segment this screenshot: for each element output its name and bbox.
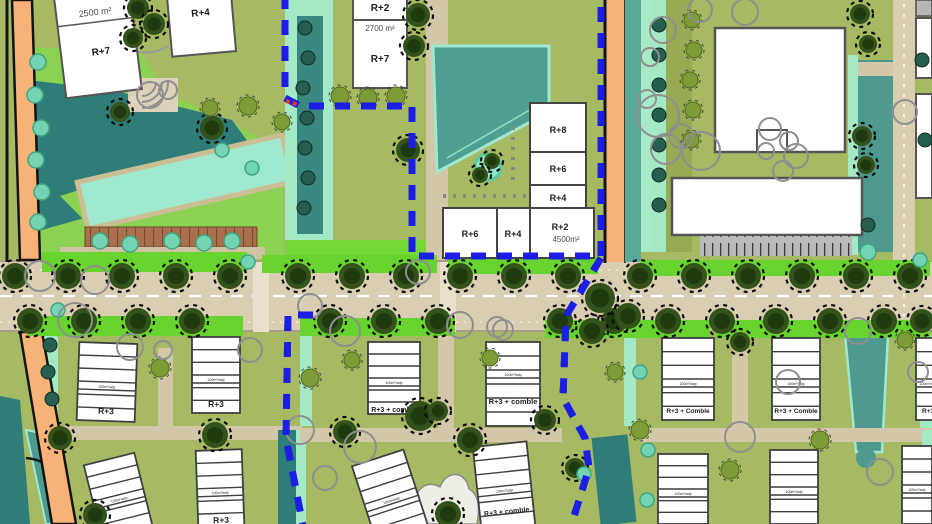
tree-core — [205, 121, 220, 136]
hedge-tree-icon — [43, 338, 57, 352]
street-tree-icon — [14, 305, 46, 337]
tree-core — [432, 405, 444, 417]
street-tree-icon — [444, 260, 476, 292]
teal-tree-icon — [164, 233, 180, 249]
building-label: R+3 + Comble — [774, 408, 818, 415]
street-tree-icon — [760, 305, 792, 337]
tree-core — [344, 268, 360, 284]
street-tree-icon — [498, 260, 530, 292]
tree-canopy — [913, 253, 927, 267]
tree-canopy — [202, 100, 218, 116]
tree-core — [430, 313, 446, 329]
building-row: R+6 R+4 R+2 4500m² — [443, 208, 594, 258]
hedge-tree-icon — [652, 108, 666, 122]
unit-size-label: 100m²/adp — [785, 490, 802, 494]
teal-tree-icon — [640, 493, 654, 507]
building-label: R+3 + Comble — [666, 408, 710, 415]
tree-canopy — [298, 21, 312, 35]
teal-tree-icon — [224, 233, 240, 249]
teal-tree-icon — [122, 236, 138, 252]
street-tree-icon — [199, 419, 231, 451]
tree-canopy — [27, 87, 43, 103]
tree-core — [462, 432, 478, 448]
hedge-tree-icon — [861, 218, 875, 232]
hedge-tree-icon — [652, 78, 666, 92]
tree-canopy — [861, 218, 875, 232]
street-tree-icon — [678, 260, 710, 292]
hedge-tree-icon — [296, 81, 310, 95]
street-tree-icon — [576, 315, 608, 347]
teal-tree-icon — [28, 152, 44, 168]
tree-canopy — [297, 201, 311, 215]
tree-core — [560, 268, 576, 284]
tree-core — [338, 425, 353, 440]
tree-core — [734, 336, 746, 348]
rowhouse-building: 100m²/adpR+3 — [196, 449, 245, 524]
buildings-right-edge — [916, 0, 932, 198]
rowhouse-building: 100m²/adp — [770, 450, 818, 524]
building-stack: R+8 R+6 R+4 — [530, 103, 586, 209]
tree-canopy — [686, 42, 702, 58]
access-path — [858, 62, 894, 76]
tree-core — [222, 268, 238, 284]
building-footprint — [916, 18, 932, 78]
tree-canopy — [301, 369, 319, 387]
teal-tree-icon — [92, 233, 108, 249]
tree-canopy — [721, 461, 739, 479]
street-tree-icon — [652, 305, 684, 337]
building-tm-r2: R+2 — [353, 0, 407, 20]
tree-core — [131, 1, 145, 15]
tree-core — [506, 268, 522, 284]
rowhouse-building: 100m²/adp — [902, 446, 932, 524]
tree-core — [407, 39, 421, 53]
tree-canopy — [652, 108, 666, 122]
building-label: R+7 — [371, 54, 390, 65]
hedge-tree-icon — [41, 365, 55, 379]
building-label: R+4 — [550, 193, 567, 203]
tree-canopy — [34, 184, 50, 200]
rowhouse-building: 100m²/adpR+3 + Comble — [662, 338, 714, 420]
tree-canopy — [652, 198, 666, 212]
building-label: R+3 — [98, 406, 114, 417]
mint-strip — [641, 0, 651, 252]
water-blob — [856, 448, 876, 468]
street-tree-icon — [160, 260, 192, 292]
teal-tree-icon — [33, 120, 49, 136]
building-label: R+4 — [191, 7, 211, 20]
rowhouse-building: 100m²/adpR+3 + Comble — [772, 338, 820, 420]
tree-core — [88, 508, 103, 523]
unit-size-label: 100m²/adp — [908, 488, 925, 492]
tree-canopy — [915, 53, 929, 67]
street-tree-icon — [52, 260, 84, 292]
tree-canopy — [631, 421, 649, 439]
street-tree-icon — [282, 260, 314, 292]
tree-core — [22, 313, 38, 329]
building-footprint — [530, 208, 594, 258]
street-tree-icon — [122, 305, 154, 337]
teal-tree-icon — [245, 161, 259, 175]
tree-core — [475, 170, 485, 180]
tree-core — [60, 268, 76, 284]
building-tm-r7: 2700 m² R+7 — [353, 20, 407, 88]
tree-core — [53, 431, 68, 446]
street-tree-icon — [0, 260, 31, 292]
teal-strip — [625, 0, 641, 262]
unit-size-label: 100m²/adp — [674, 492, 691, 496]
teal-tree-icon — [30, 214, 46, 230]
teal-tree-icon — [27, 87, 43, 103]
tree-canopy — [331, 87, 349, 105]
hedge-tree-icon — [297, 201, 311, 215]
tree-canopy — [607, 364, 623, 380]
lane — [42, 426, 302, 440]
tree-core — [848, 268, 864, 284]
tree-canopy — [298, 141, 312, 155]
tree-canopy — [811, 431, 829, 449]
tree-canopy — [860, 244, 876, 260]
tree-canopy — [482, 350, 498, 366]
building-tl-r4: R+4 — [166, 0, 236, 57]
building-footprint — [916, 0, 932, 16]
tree-core — [856, 130, 868, 142]
tree-core — [862, 38, 873, 49]
tree-canopy — [215, 143, 229, 157]
street-tree-icon — [840, 260, 872, 292]
street-tree-icon — [732, 260, 764, 292]
hedge-tree-icon — [298, 21, 312, 35]
tree-core — [130, 313, 146, 329]
tree-canopy — [685, 102, 701, 118]
tree-core — [538, 413, 552, 427]
tree-canopy — [41, 365, 55, 379]
tree-canopy — [30, 214, 46, 230]
tree-core — [147, 17, 161, 31]
tree-canopy — [897, 332, 913, 348]
tree-canopy — [344, 352, 360, 368]
tree-core — [487, 156, 497, 166]
building-tl-r7: 2500 m² R+7 — [54, 0, 142, 98]
hedge-tree-icon — [300, 111, 314, 125]
street-tree-icon — [612, 300, 644, 332]
building-area-label: 2700 m² — [365, 24, 395, 33]
tree-core — [876, 313, 892, 329]
unit-size-label: 100m²/adp — [212, 491, 229, 496]
tree-core — [714, 313, 730, 329]
hedge-tree-icon — [298, 141, 312, 155]
tree-core — [207, 427, 223, 443]
tree-canopy — [918, 133, 932, 147]
tree-core — [452, 268, 468, 284]
tree-canopy — [28, 152, 44, 168]
hedge-tree-icon — [45, 392, 59, 406]
tree-core — [915, 314, 930, 329]
building-footprint — [757, 130, 787, 152]
hedge-tree-icon — [301, 51, 315, 65]
rowhouse-building: 100m²/adpR+3 — [77, 342, 138, 422]
tree-core — [411, 8, 426, 23]
tree-core — [440, 506, 456, 522]
building-label: R+3 — [208, 399, 224, 409]
building-label: R+8 — [550, 125, 567, 135]
unit-size-label: 100m²/adp — [919, 382, 932, 386]
tree-core — [660, 313, 676, 329]
building-label: R+6 — [550, 164, 567, 174]
building-label: R+3 — [213, 515, 229, 524]
hedge-tree-icon — [301, 171, 315, 185]
street-tree-icon — [624, 260, 656, 292]
masterplan-map: 2500 m² R+7 R+4 R+2 2700 m² R+7 R+8 R+6 … — [0, 0, 932, 524]
tree-canopy — [641, 443, 655, 457]
teal-tree-icon — [215, 143, 229, 157]
tree-canopy — [652, 78, 666, 92]
teal-tree-icon — [241, 255, 255, 269]
street-tree-icon — [106, 260, 138, 292]
tree-canopy — [224, 233, 240, 249]
street-tree-icon — [176, 305, 208, 337]
unit-size-label: 100m²/adp — [385, 381, 402, 385]
street-tree-icon — [786, 260, 818, 292]
building-label: R+3 + comble — [489, 397, 538, 406]
tree-core — [290, 268, 306, 284]
building-label: R+4 — [505, 229, 522, 239]
tree-canopy — [652, 168, 666, 182]
building-label: R+2 — [552, 222, 569, 232]
tree-core — [822, 313, 838, 329]
street-tree-icon — [68, 305, 100, 337]
tree-core — [114, 106, 126, 118]
tree-core — [7, 268, 23, 284]
tree-core — [794, 268, 810, 284]
mint-strip — [624, 336, 636, 426]
tree-core — [632, 268, 648, 284]
building-label: R+7 — [91, 46, 111, 59]
tree-canopy — [300, 111, 314, 125]
tree-canopy — [43, 338, 57, 352]
tree-canopy — [241, 255, 255, 269]
tree-core — [768, 313, 784, 329]
rowhouse-building: 100m²/adpR+3 + comble — [473, 441, 535, 524]
unit-size-label: 100m²/adp — [679, 382, 696, 386]
building-label: R+2 — [371, 3, 390, 14]
street-tree-icon — [336, 260, 368, 292]
building-area-label: 4500m² — [552, 235, 579, 244]
street-tree-icon — [432, 498, 464, 524]
teal-tree-icon — [641, 443, 655, 457]
tree-canopy — [301, 51, 315, 65]
unit-size-label: 100m²/adp — [98, 385, 115, 390]
tree-core — [620, 308, 636, 324]
hedge-tree-icon — [918, 133, 932, 147]
tree-core — [584, 323, 600, 339]
building-label: R+6 — [462, 229, 479, 239]
masterplan-canvas: 2500 m² R+7 R+4 R+2 2700 m² R+7 R+8 R+6 … — [0, 0, 932, 524]
teal-tree-icon — [34, 184, 50, 200]
tree-canopy — [296, 81, 310, 95]
unit-size-label: 100m²/adp — [787, 382, 804, 386]
hedge-tree-icon — [652, 168, 666, 182]
tree-canopy — [239, 97, 257, 115]
tree-canopy — [274, 114, 290, 130]
hedge-tree-icon — [915, 53, 929, 67]
street-tree-icon — [868, 305, 900, 337]
hedge-tree-icon — [652, 198, 666, 212]
street-tree-icon — [552, 260, 584, 292]
tree-core — [902, 268, 918, 284]
tree-core — [168, 268, 184, 284]
tree-canopy — [245, 161, 259, 175]
tree-core — [184, 313, 200, 329]
street-tree-icon — [814, 305, 846, 337]
tree-canopy — [30, 54, 46, 70]
tree-canopy — [196, 235, 212, 251]
street-tree-icon — [469, 164, 491, 186]
tree-canopy — [633, 365, 647, 379]
tree-core — [686, 268, 702, 284]
tree-canopy — [122, 236, 138, 252]
unit-size-label: 100m²/adp — [504, 373, 521, 377]
tree-core — [591, 289, 610, 308]
tree-core — [376, 313, 392, 329]
tree-core — [854, 8, 866, 20]
parking-stalls — [700, 236, 852, 256]
tree-core — [114, 268, 130, 284]
unit-size-label: 100m²/adp — [207, 378, 224, 382]
tree-canopy — [151, 359, 169, 377]
teal-tree-icon — [633, 365, 647, 379]
tree-canopy — [387, 87, 405, 105]
street-tree-icon — [454, 424, 486, 456]
tree-canopy — [301, 171, 315, 185]
orange-road — [606, 0, 624, 262]
tree-canopy — [682, 72, 698, 88]
teal-tree-icon — [196, 235, 212, 251]
building-label: R+3 — [922, 408, 932, 415]
tree-canopy — [640, 493, 654, 507]
street-tree-icon — [368, 305, 400, 337]
tree-canopy — [164, 233, 180, 249]
tree-canopy — [33, 120, 49, 136]
teal-tree-icon — [860, 244, 876, 260]
tree-core — [860, 159, 871, 170]
lane — [640, 428, 932, 442]
rowhouse-building: 100m²/adp — [658, 454, 708, 524]
teal-tree-icon — [913, 253, 927, 267]
tree-core — [740, 268, 756, 284]
tree-core — [127, 32, 139, 44]
building-footprint — [672, 178, 862, 235]
tree-canopy — [45, 392, 59, 406]
rowhouse-building: 100m²/adpR+3 — [192, 337, 240, 413]
teal-tree-icon — [30, 54, 46, 70]
tree-canopy — [92, 233, 108, 249]
